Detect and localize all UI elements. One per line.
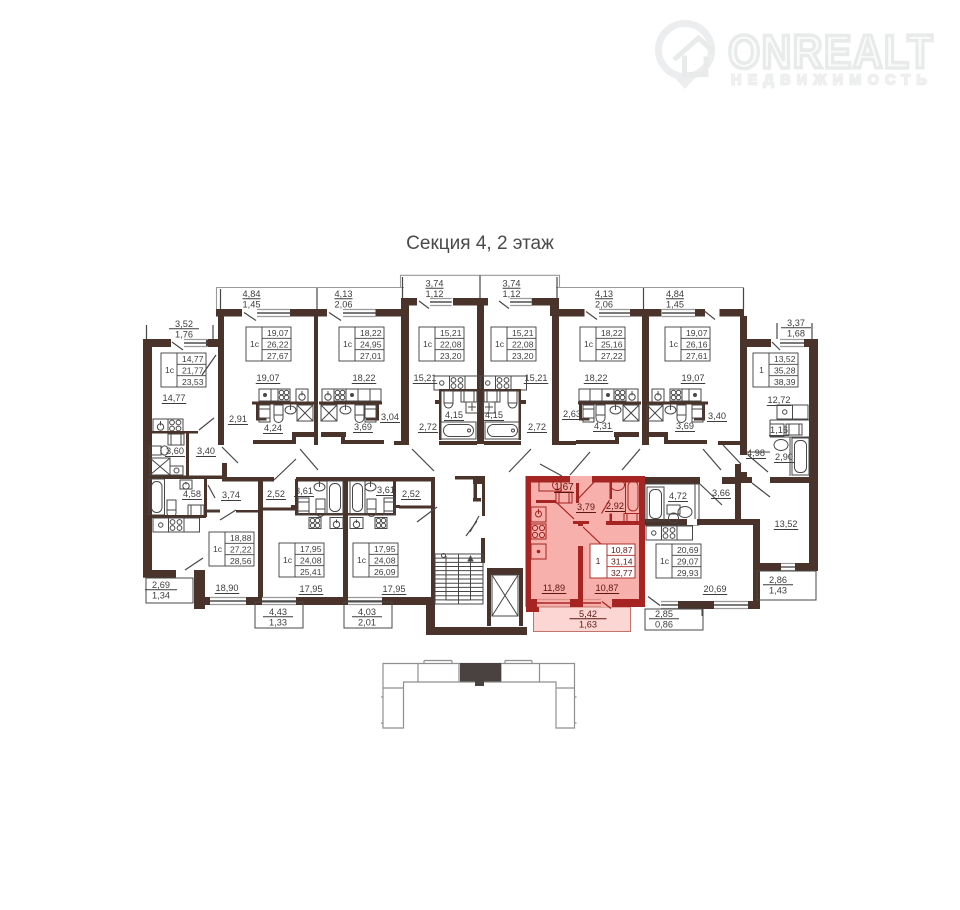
- svg-text:1,33: 1,33: [269, 617, 287, 627]
- svg-text:3,52: 3,52: [175, 319, 193, 329]
- svg-text:4,15: 4,15: [485, 410, 503, 420]
- svg-text:3,79: 3,79: [577, 502, 595, 512]
- svg-text:28,56: 28,56: [230, 556, 252, 566]
- svg-text:27,61: 27,61: [686, 351, 708, 361]
- svg-text:1с: 1с: [213, 544, 223, 554]
- svg-text:18,90: 18,90: [216, 583, 239, 593]
- svg-text:17,95: 17,95: [300, 584, 323, 594]
- svg-text:3,74: 3,74: [503, 279, 521, 289]
- svg-text:1,45: 1,45: [666, 299, 684, 309]
- svg-text:1с: 1с: [495, 339, 505, 349]
- svg-text:24,08: 24,08: [374, 556, 396, 566]
- svg-text:1с: 1с: [250, 339, 260, 349]
- svg-text:4,84: 4,84: [243, 289, 261, 299]
- svg-text:2,69: 2,69: [152, 580, 170, 590]
- svg-text:19,07: 19,07: [267, 328, 289, 338]
- svg-text:2,01: 2,01: [358, 617, 376, 627]
- svg-text:3,40: 3,40: [197, 446, 215, 456]
- svg-text:27,22: 27,22: [601, 351, 623, 361]
- svg-text:2,91: 2,91: [229, 414, 247, 424]
- svg-text:22,08: 22,08: [440, 340, 462, 350]
- svg-text:1,68: 1,68: [787, 328, 805, 338]
- svg-text:4,58: 4,58: [183, 489, 201, 499]
- svg-text:4,13: 4,13: [335, 289, 353, 299]
- svg-text:4,31: 4,31: [594, 421, 612, 431]
- svg-text:1с: 1с: [584, 339, 594, 349]
- svg-text:3,74: 3,74: [426, 279, 444, 289]
- svg-text:20,69: 20,69: [704, 584, 727, 594]
- svg-text:2,52: 2,52: [402, 489, 420, 499]
- svg-text:2,06: 2,06: [335, 299, 353, 309]
- svg-text:3,69: 3,69: [676, 421, 694, 431]
- svg-text:3,37: 3,37: [787, 318, 805, 328]
- svg-text:10,87: 10,87: [596, 583, 619, 593]
- svg-text:14,77: 14,77: [182, 354, 204, 364]
- svg-text:1с: 1с: [669, 339, 679, 349]
- svg-text:24,08: 24,08: [300, 556, 322, 566]
- svg-text:1,63: 1,63: [579, 619, 597, 629]
- svg-text:2,86: 2,86: [769, 575, 787, 585]
- svg-text:1,43: 1,43: [769, 585, 787, 595]
- svg-text:11,89: 11,89: [543, 583, 565, 593]
- svg-text:13,52: 13,52: [774, 354, 796, 364]
- svg-text:32,77: 32,77: [611, 568, 633, 578]
- svg-text:1: 1: [596, 556, 601, 566]
- svg-text:3,61: 3,61: [295, 486, 313, 496]
- svg-text:17,95: 17,95: [374, 544, 396, 554]
- svg-text:1,12: 1,12: [503, 289, 521, 299]
- svg-text:3,40: 3,40: [708, 411, 726, 421]
- svg-text:Секция 4, 2 этаж: Секция 4, 2 этаж: [406, 233, 554, 254]
- svg-text:1,76: 1,76: [175, 329, 193, 339]
- svg-text:4,43: 4,43: [269, 607, 287, 617]
- svg-text:18,22: 18,22: [360, 328, 382, 338]
- svg-text:29,93: 29,93: [677, 568, 699, 578]
- svg-text:18,22: 18,22: [585, 373, 608, 383]
- svg-text:2,92: 2,92: [606, 501, 624, 511]
- svg-text:1с: 1с: [423, 339, 433, 349]
- svg-text:17,95: 17,95: [383, 584, 406, 594]
- svg-text:4,24: 4,24: [264, 423, 282, 433]
- svg-text:25,41: 25,41: [300, 567, 322, 577]
- svg-text:1,16: 1,16: [770, 425, 788, 435]
- svg-text:ONREALT: ONREALT: [728, 27, 934, 79]
- svg-text:12,72: 12,72: [768, 395, 791, 405]
- svg-text:27,22: 27,22: [230, 545, 252, 555]
- svg-text:20,69: 20,69: [677, 545, 699, 555]
- svg-text:1с: 1с: [660, 556, 670, 566]
- svg-text:18,22: 18,22: [353, 373, 376, 383]
- svg-text:15,21: 15,21: [512, 328, 534, 338]
- svg-text:21,77: 21,77: [182, 366, 204, 376]
- svg-text:23,20: 23,20: [512, 351, 534, 361]
- svg-text:0,86: 0,86: [655, 619, 673, 629]
- svg-text:4,03: 4,03: [358, 607, 376, 617]
- svg-text:3,04: 3,04: [381, 412, 399, 422]
- svg-text:14,77: 14,77: [163, 393, 186, 403]
- svg-text:15,21: 15,21: [440, 328, 462, 338]
- svg-text:1: 1: [759, 365, 764, 375]
- svg-text:26,22: 26,22: [267, 340, 289, 350]
- svg-text:4,84: 4,84: [666, 289, 684, 299]
- svg-text:25,16: 25,16: [601, 340, 623, 350]
- svg-text:1с: 1с: [357, 555, 367, 565]
- svg-text:1,12: 1,12: [426, 289, 444, 299]
- svg-text:19,07: 19,07: [686, 328, 708, 338]
- svg-text:17,95: 17,95: [300, 544, 322, 554]
- svg-text:22,08: 22,08: [512, 340, 534, 350]
- svg-text:13,52: 13,52: [775, 519, 798, 529]
- svg-text:31,14: 31,14: [611, 557, 633, 567]
- svg-text:1,45: 1,45: [243, 299, 261, 309]
- svg-text:10,87: 10,87: [611, 545, 633, 555]
- svg-text:23,53: 23,53: [182, 377, 204, 387]
- svg-text:4,13: 4,13: [595, 289, 613, 299]
- svg-text:29,07: 29,07: [677, 557, 699, 567]
- svg-text:15,21: 15,21: [414, 373, 437, 383]
- svg-text:19,07: 19,07: [682, 373, 705, 383]
- svg-text:26,09: 26,09: [374, 567, 396, 577]
- svg-text:1с: 1с: [283, 555, 293, 565]
- svg-text:2,72: 2,72: [419, 422, 437, 432]
- svg-text:23,20: 23,20: [440, 351, 462, 361]
- svg-text:3,66: 3,66: [712, 488, 730, 498]
- svg-text:26,16: 26,16: [686, 340, 708, 350]
- svg-text:2,72: 2,72: [528, 422, 546, 432]
- svg-text:2,85: 2,85: [655, 609, 673, 619]
- svg-text:1,34: 1,34: [152, 590, 170, 600]
- svg-text:1с: 1с: [165, 365, 175, 375]
- svg-text:3,61: 3,61: [377, 485, 395, 495]
- svg-text:2,63: 2,63: [563, 409, 581, 419]
- svg-text:4,15: 4,15: [445, 410, 463, 420]
- svg-text:27,01: 27,01: [360, 351, 382, 361]
- svg-text:35,28: 35,28: [774, 366, 796, 376]
- svg-text:18,22: 18,22: [601, 328, 623, 338]
- svg-text:3,74: 3,74: [222, 490, 240, 500]
- svg-text:18,88: 18,88: [230, 533, 252, 543]
- svg-text:НЕДВИЖИМОСТЬ: НЕДВИЖИМОСТЬ: [731, 73, 933, 89]
- svg-text:27,67: 27,67: [267, 351, 289, 361]
- svg-text:5,42: 5,42: [579, 609, 597, 619]
- svg-text:24,95: 24,95: [360, 340, 382, 350]
- svg-text:2,06: 2,06: [595, 299, 613, 309]
- svg-text:38,39: 38,39: [774, 377, 796, 387]
- svg-text:1,67: 1,67: [554, 482, 574, 493]
- svg-text:15,21: 15,21: [525, 373, 548, 383]
- svg-text:1с: 1с: [343, 339, 353, 349]
- svg-text:19,07: 19,07: [257, 373, 280, 383]
- svg-text:2,52: 2,52: [267, 489, 285, 499]
- svg-text:3,69: 3,69: [354, 422, 372, 432]
- svg-text:4,72: 4,72: [669, 491, 687, 501]
